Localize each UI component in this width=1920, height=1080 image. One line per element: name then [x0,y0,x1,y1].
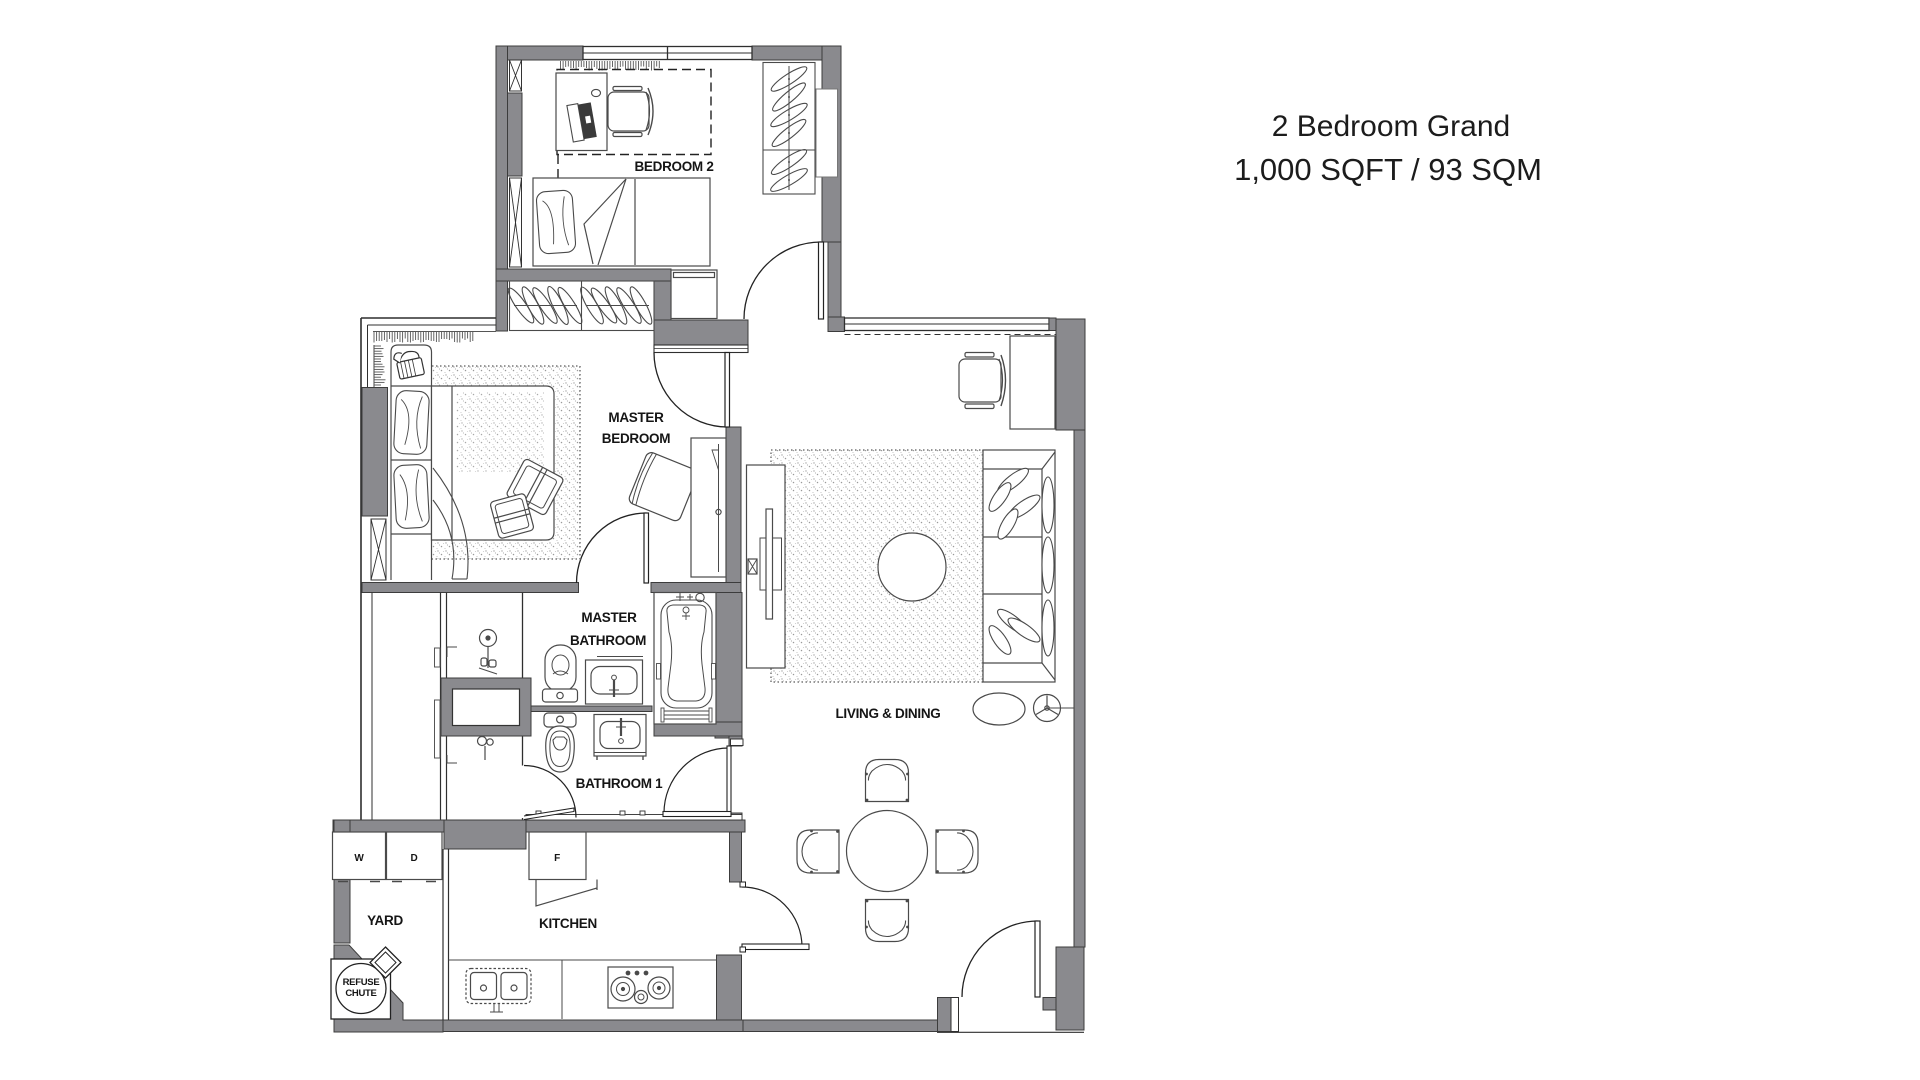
svg-text:MASTER: MASTER [581,610,637,625]
svg-text:CHUTE: CHUTE [345,988,376,999]
svg-text:KITCHEN: KITCHEN [539,916,597,931]
svg-text:2 Bedroom Grand: 2 Bedroom Grand [1272,110,1510,143]
svg-text:YARD: YARD [367,913,403,928]
svg-text:BEDROOM: BEDROOM [602,431,670,446]
svg-text:W: W [354,853,364,864]
svg-text:BATHROOM: BATHROOM [570,633,646,648]
svg-text:BATHROOM 1: BATHROOM 1 [576,776,664,791]
svg-text:1,000 SQFT / 93 SQM: 1,000 SQFT / 93 SQM [1234,152,1542,187]
svg-text:LIVING & DINING: LIVING & DINING [835,706,940,721]
svg-text:REFUSE: REFUSE [343,977,380,988]
svg-text:BEDROOM 2: BEDROOM 2 [634,159,713,174]
svg-text:MASTER: MASTER [608,410,664,425]
svg-text:F: F [554,853,560,864]
svg-text:D: D [411,853,418,864]
